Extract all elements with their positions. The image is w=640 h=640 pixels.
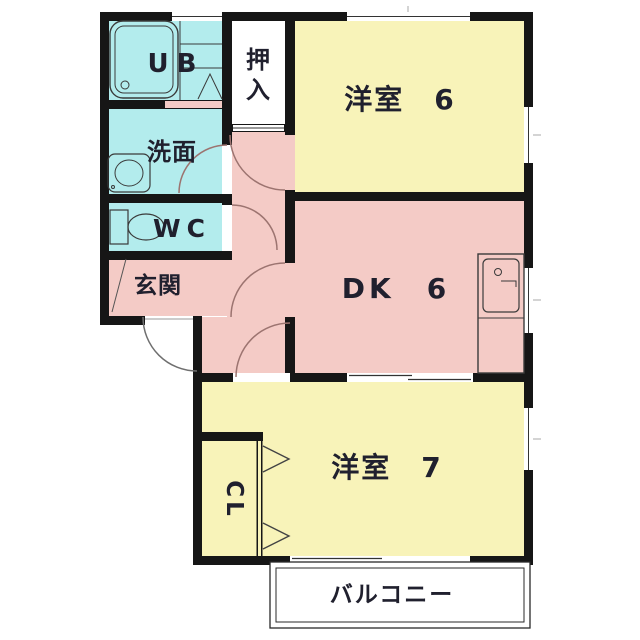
senmen-label: 洗面 <box>147 138 197 166</box>
floor-plan-canvas: UB 押 入 洗面 WC 玄関 洋室 6 DK 6 洋室 7 CL バルコニー <box>0 0 640 640</box>
wc-label: WC <box>153 214 211 243</box>
wall-cl-top <box>193 432 263 441</box>
wc-door-gap <box>222 205 232 251</box>
genkan-label: 玄関 <box>134 272 182 299</box>
wall-entry-side <box>193 316 202 382</box>
wall-western6-dk <box>285 192 533 201</box>
wall-senmen-bottom <box>100 194 232 203</box>
dk-label: DK 6 <box>342 272 450 305</box>
entry-door-arc <box>143 317 197 371</box>
wall-western7-left <box>193 373 202 565</box>
wall-wc-bottom <box>100 251 232 260</box>
ub-door-gap <box>165 101 222 108</box>
western7-door-gap <box>233 373 290 382</box>
dk-door-gap <box>285 263 295 317</box>
dk-western7-sliding-gap <box>347 373 473 382</box>
senmen-door-gap <box>222 145 232 194</box>
oshiire-label-top: 押 <box>246 46 270 74</box>
floor-plan-drawing: UB 押 入 洗面 WC 玄関 洋室 6 DK 6 洋室 7 CL バルコニー <box>0 0 640 640</box>
western6-door-gap <box>285 135 295 190</box>
western7-label: 洋室 7 <box>331 451 442 484</box>
oshiire-label-bottom: 入 <box>246 76 270 104</box>
wall-genkan-bottom <box>100 316 145 325</box>
ub-label: UB <box>148 49 205 79</box>
balcony-label: バルコニー <box>330 582 455 608</box>
hallway-lower-floor <box>202 317 290 377</box>
cl-label: CL <box>221 480 247 520</box>
western6-label: 洋室 6 <box>344 83 455 116</box>
entry-door-gap <box>145 316 193 325</box>
